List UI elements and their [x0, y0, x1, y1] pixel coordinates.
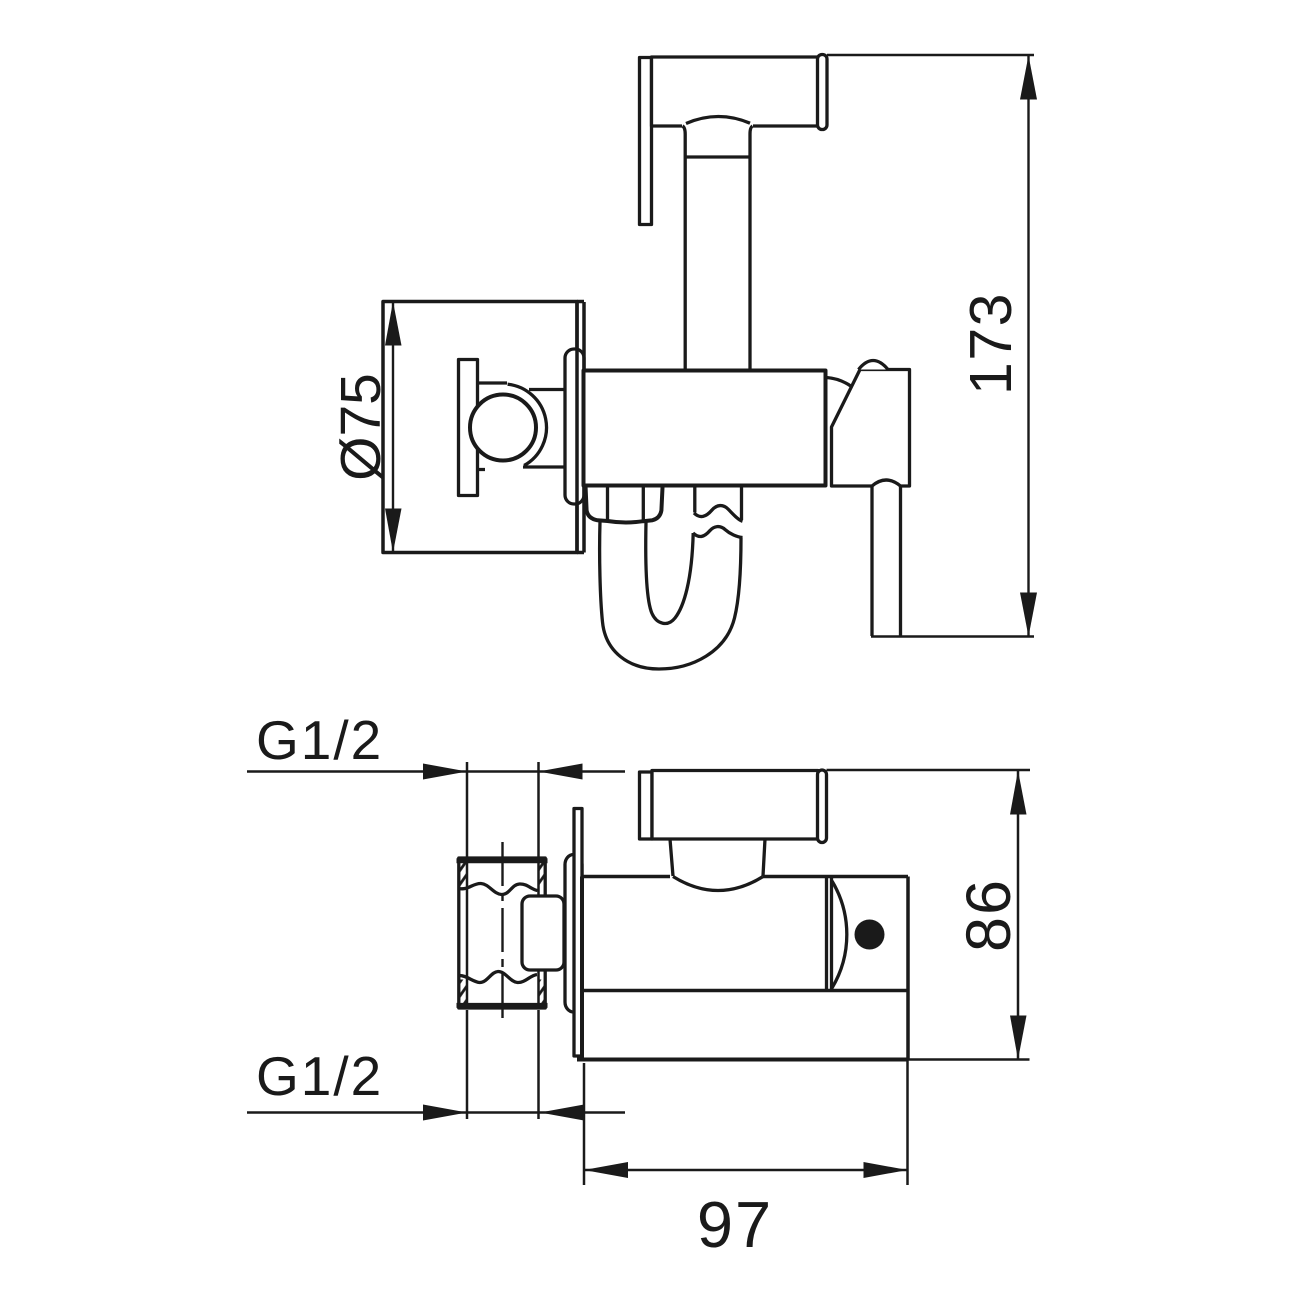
svg-text:97: 97: [697, 1188, 773, 1261]
svg-text:Ø75: Ø75: [329, 373, 393, 481]
svg-text:173: 173: [958, 292, 1024, 395]
svg-text:G1/2: G1/2: [256, 709, 383, 771]
svg-text:G1/2: G1/2: [256, 1045, 383, 1107]
svg-text:86: 86: [954, 878, 1024, 952]
